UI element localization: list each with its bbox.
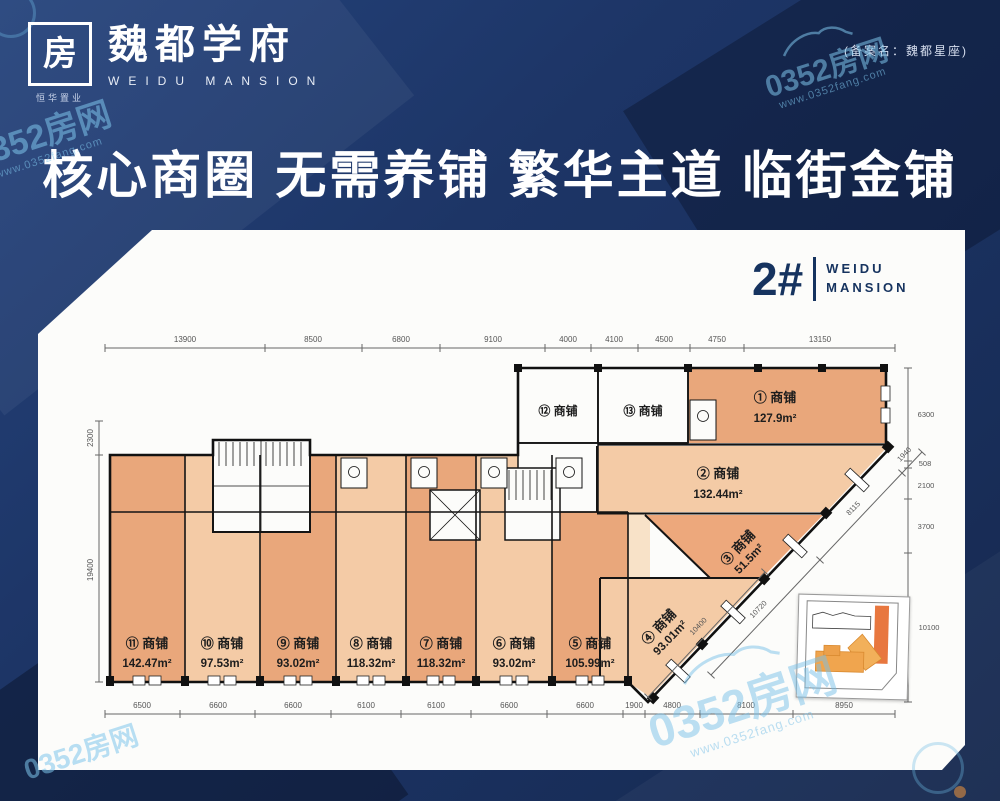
- dim-label: 2100: [918, 481, 935, 490]
- shop-label: ① 商铺: [754, 390, 797, 405]
- shop-area: 93.02m²: [493, 658, 536, 670]
- dim-label: 10100: [919, 623, 940, 632]
- shop-label: ⑫ 商铺: [538, 403, 577, 418]
- dim-label: 6300: [918, 410, 935, 419]
- dim-label: 508: [919, 459, 932, 468]
- dim-label: 6100: [357, 701, 375, 710]
- shop-label: ⑨ 商铺: [277, 636, 320, 651]
- block-tag: 2# WEIDU MANSION: [752, 256, 909, 302]
- shop-area: 93.02m²: [277, 658, 320, 670]
- shop-label: ⑪ 商铺: [126, 636, 169, 651]
- shop-label: ⑬ 商铺: [623, 403, 662, 418]
- dim-label: 4750: [708, 335, 726, 344]
- shop-label: ⑤ 商铺: [569, 636, 612, 651]
- dim-label: 8100: [737, 701, 755, 710]
- dim-label: 6600: [209, 701, 227, 710]
- block-en-line1: WEIDU: [826, 260, 908, 279]
- shop-label: ⑧ 商铺: [350, 636, 393, 651]
- block-en-line2: MANSION: [826, 279, 908, 298]
- shop-area: 127.9m²: [754, 413, 797, 425]
- dim-label: 6500: [133, 701, 151, 710]
- shop-area: 97.53m²: [201, 658, 244, 670]
- dim-label: 9100: [484, 335, 502, 344]
- block-number: 2#: [752, 256, 803, 302]
- site-minimap-drawing: [797, 595, 908, 698]
- dim-label: 13150: [809, 335, 832, 344]
- dim-label: 6600: [576, 701, 594, 710]
- dim-label: 4800: [663, 701, 681, 710]
- site-minimap: [796, 594, 911, 701]
- shop-label: ⑦ 商铺: [420, 636, 463, 651]
- shop-area: 118.32m²: [347, 658, 396, 670]
- dim-label: 8500: [304, 335, 322, 344]
- dim-label: 6600: [284, 701, 302, 710]
- dim-label: 1900: [625, 701, 643, 710]
- dim-label: 6800: [392, 335, 410, 344]
- dim-label: 19400: [86, 558, 95, 581]
- dim-label: 6600: [500, 701, 518, 710]
- shop-label: ② 商铺: [697, 466, 740, 481]
- dim-label: 6100: [427, 701, 445, 710]
- shop-label: ⑥ 商铺: [493, 636, 536, 651]
- shop-area: 132.44m²: [693, 489, 742, 501]
- page: 房 恒华置业 魏都学府 WEIDU MANSION (备案名：魏都星座) 核心商…: [0, 0, 1000, 801]
- dim-label: 8950: [835, 701, 853, 710]
- dim-label: 2300: [86, 429, 95, 447]
- shop-area: 105.99m²: [565, 658, 614, 670]
- dim-label: 4000: [559, 335, 577, 344]
- dim-label: 3700: [918, 522, 935, 531]
- shop-area: 118.32m²: [417, 658, 466, 670]
- shop-label: ⑩ 商铺: [201, 636, 244, 651]
- block-divider: [813, 257, 816, 301]
- dim-label: 13900: [174, 335, 197, 344]
- shop-area: 142.47m²: [122, 658, 171, 670]
- dim-label: 4100: [605, 335, 623, 344]
- dim-label: 4500: [655, 335, 673, 344]
